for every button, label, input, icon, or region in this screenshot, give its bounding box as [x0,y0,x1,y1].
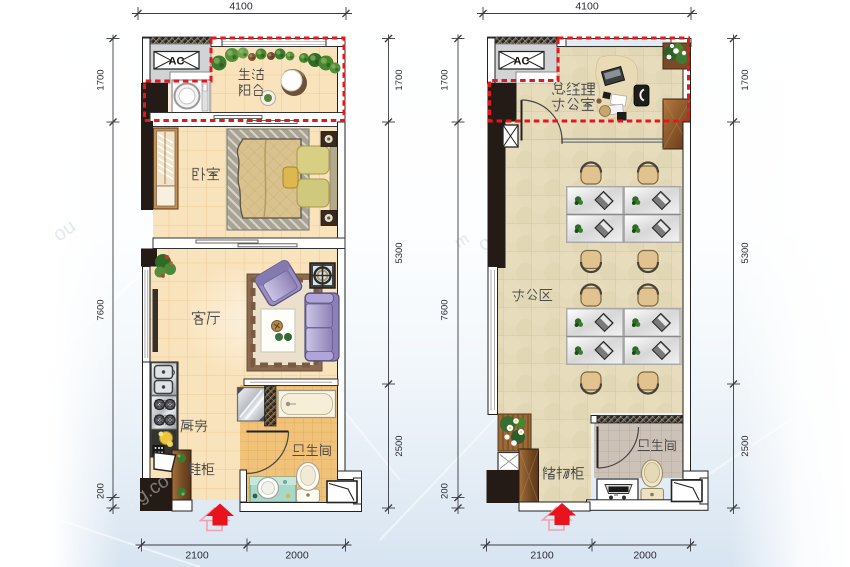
svg-text:7600: 7600 [440,299,451,320]
svg-text:m: m [452,230,472,252]
svg-text:2500: 2500 [740,435,751,456]
svg-text:5300: 5300 [740,242,751,263]
svg-text:5300: 5300 [394,242,405,263]
svg-text:ou: ou [49,215,80,246]
svg-text:4100: 4100 [229,1,253,13]
svg-text:1700: 1700 [394,69,405,90]
svg-text:1700: 1700 [740,69,751,90]
svg-text:AC: AC [169,56,185,68]
svg-text:AC: AC [514,56,530,68]
svg-text:2000: 2000 [285,550,309,562]
svg-text:2500: 2500 [394,435,405,456]
svg-text:2100: 2100 [530,550,554,562]
svg-text:1700: 1700 [96,69,107,90]
svg-text:2000: 2000 [633,550,657,562]
svg-text:2100: 2100 [185,550,209,562]
svg-text:200: 200 [96,483,107,499]
svg-text:7600: 7600 [96,299,107,320]
svg-text:1700: 1700 [440,69,451,90]
svg-text:4100: 4100 [575,1,599,13]
svg-text:200: 200 [440,483,451,499]
